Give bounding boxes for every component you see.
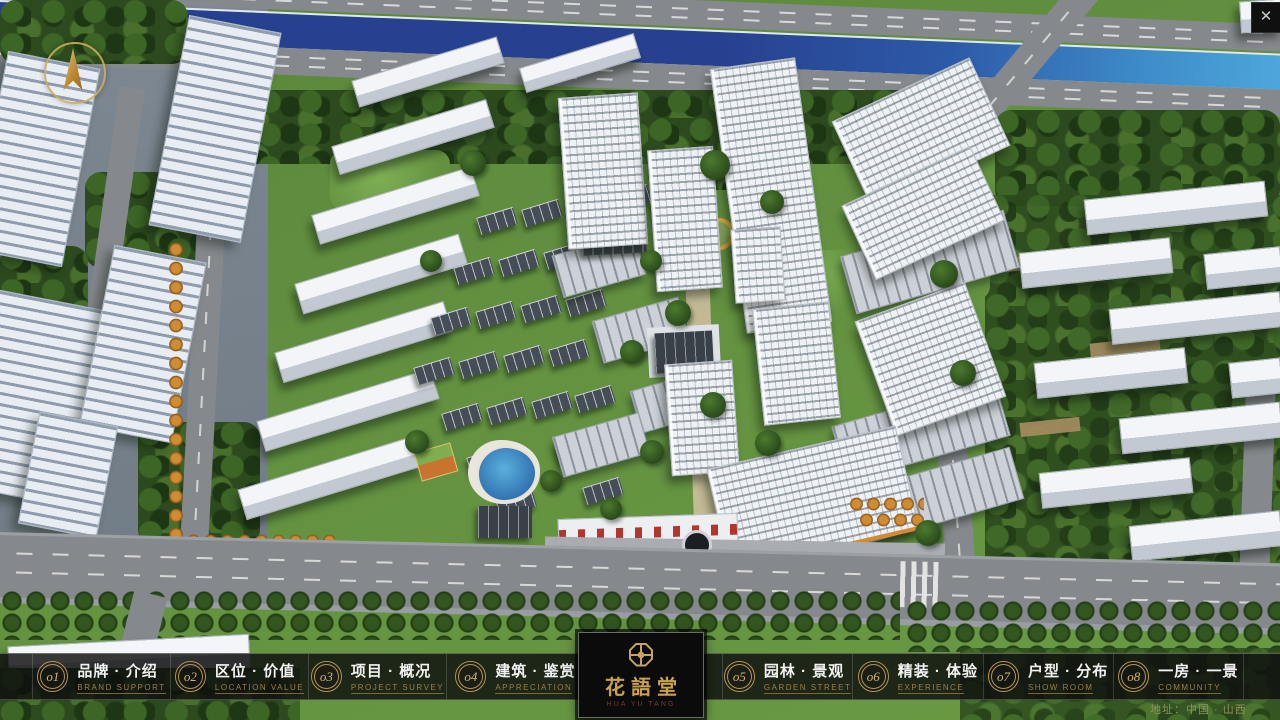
nav-sublabel: BRAND SUPPORT [77, 683, 165, 694]
nav-label: 精装 · 体验 [898, 660, 978, 681]
close-button[interactable]: ✕ [1251, 2, 1280, 33]
presentation-screen: ✕ o1 品牌 · 介绍BRAND SUPPORT o2 区位 · 价值LOCA… [0, 0, 1280, 720]
nav-number-badge: o2 [175, 661, 206, 692]
nav-item-room-view[interactable]: o8 一房 · 一景COMMUNITY [1113, 654, 1244, 699]
traditional-gate-house [478, 506, 532, 538]
nav-label: 项目 · 概况 [351, 660, 431, 681]
nav-number-badge: o6 [858, 661, 889, 692]
nav-number-badge: o1 [37, 661, 68, 692]
courtyard-house [441, 403, 483, 431]
tree-clump [700, 150, 730, 180]
brand-seal-icon [629, 643, 653, 667]
courtyard-house [531, 391, 573, 419]
courtyard-house [521, 199, 563, 227]
highrise-tower [664, 360, 740, 476]
nav-item-garden-landscape[interactable]: o5 园林 · 景观GARDEN STREET [722, 654, 852, 699]
tree-clump [930, 260, 958, 288]
tree-clump [760, 190, 784, 214]
row-building [1228, 357, 1280, 398]
brand-title: 花語堂 [599, 671, 683, 700]
tree-clump [405, 430, 429, 454]
courtyard-house [475, 301, 517, 329]
nav-number: o5 [733, 669, 746, 685]
nav-number: o6 [867, 669, 880, 685]
nav-number: o4 [464, 669, 477, 685]
row-building [1203, 246, 1280, 290]
aerial-render-scene [0, 0, 1280, 720]
nav-group-right: o5 园林 · 景观GARDEN STREET o6 精装 · 体验EXPERI… [722, 654, 1244, 699]
orange-tree-row [168, 240, 184, 540]
highrise-tower [730, 226, 785, 303]
courtyard-house [520, 295, 562, 323]
nav-sublabel: APPRECIATION [495, 683, 572, 694]
nav-number-badge: o3 [311, 661, 342, 692]
tree-clump [640, 250, 662, 272]
nav-label: 户型 · 分布 [1028, 660, 1108, 681]
courtyard-house [486, 397, 528, 425]
nav-sublabel: EXPERIENCE [898, 683, 965, 694]
nav-sublabel: GARDEN STREET [764, 683, 852, 694]
nav-item-brand-intro[interactable]: o1 品牌 · 介绍BRAND SUPPORT [32, 654, 170, 699]
seal-pattern [631, 645, 651, 665]
nav-number: o2 [184, 669, 197, 685]
tree-clump [600, 498, 622, 520]
highrise-tower [558, 92, 648, 249]
nav-number-badge: o4 [455, 661, 486, 692]
nav-number-badge: o8 [1118, 661, 1149, 692]
tree-clump [755, 430, 781, 456]
nav-number: o1 [46, 669, 59, 685]
brand-logo-panel[interactable]: 花語堂 HUA YU TANG [578, 632, 704, 718]
nav-sublabel: LOCATION VALUE [215, 683, 304, 694]
courtyard-house [574, 385, 616, 413]
nav-number-badge: o7 [988, 661, 1019, 692]
nav-item-location-value[interactable]: o2 区位 · 价值LOCATION VALUE [170, 654, 308, 699]
tree-clump [640, 440, 664, 464]
tree-clump [540, 470, 562, 492]
brand-tagline: HUA YU TANG [607, 701, 676, 708]
courtyard-house [498, 249, 540, 277]
courtyard-house [548, 339, 590, 367]
nav-label: 品牌 · 介绍 [77, 660, 157, 681]
nav-group-left: o1 品牌 · 介绍BRAND SUPPORT o2 区位 · 价值LOCATI… [32, 654, 584, 699]
tree-clump [460, 150, 486, 176]
tree-clump [665, 300, 691, 326]
nav-number: o8 [1127, 669, 1140, 685]
close-icon: ✕ [1260, 8, 1273, 25]
project-address: 地址：中国 · 山西 [1150, 701, 1247, 717]
tree-clump [950, 360, 976, 386]
nav-item-architecture-appreciation[interactable]: o4 建筑 · 鉴赏APPRECIATION [446, 654, 584, 699]
nav-label: 建筑 · 鉴赏 [495, 660, 575, 681]
midrise-building [552, 412, 650, 477]
nav-item-floorplan-distribution[interactable]: o7 户型 · 分布SHOW ROOM [983, 654, 1113, 699]
tree-clump [915, 520, 941, 546]
nav-sublabel: SHOW ROOM [1028, 683, 1094, 694]
courtyard-house [503, 345, 545, 373]
nav-label: 区位 · 价值 [215, 660, 295, 681]
tree-clump [700, 392, 726, 418]
compass-north-arrow-icon [58, 48, 88, 96]
nav-item-decoration-experience[interactable]: o6 精装 · 体验EXPERIENCE [852, 654, 982, 699]
nav-label: 一房 · 一景 [1158, 660, 1238, 681]
nav-label: 园林 · 景观 [764, 660, 844, 681]
tree-clump [620, 340, 644, 364]
courtyard-house [476, 207, 518, 235]
nav-sublabel: COMMUNITY [1158, 683, 1221, 694]
nav-item-project-survey[interactable]: o3 项目 · 概况PROJECT SURVEY [308, 654, 446, 699]
roadside-trees [905, 600, 1280, 652]
nav-number: o7 [997, 669, 1010, 685]
highrise-tower [752, 301, 841, 425]
nav-sublabel: PROJECT SURVEY [351, 683, 444, 694]
tree-clump [420, 250, 442, 272]
compass-icon [44, 42, 106, 104]
nav-number-badge: o5 [724, 661, 755, 692]
courtyard-house [458, 351, 500, 379]
nav-number: o3 [320, 669, 333, 685]
orange-tree-row [848, 496, 924, 512]
